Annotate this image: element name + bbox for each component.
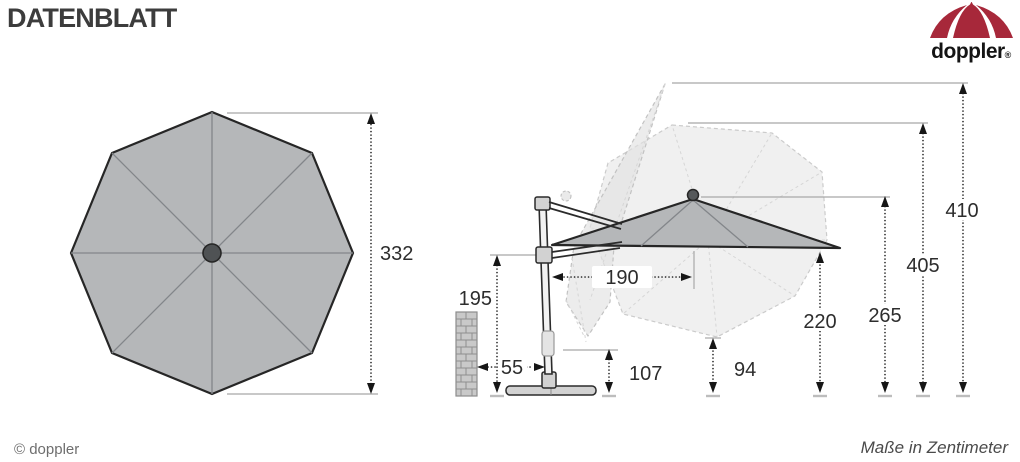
dim-hub-height: 265 xyxy=(865,196,905,396)
top-view-umbrella xyxy=(71,112,353,394)
dim-label-wall-clearance: 55 xyxy=(501,357,523,379)
dim-label-joint-height: 195 xyxy=(459,288,492,310)
dim-label-total-height: 410 xyxy=(945,200,978,222)
dim-tilt-clearance: 94 xyxy=(706,338,756,396)
dim-label-hub-height: 265 xyxy=(868,305,901,327)
units-note: Maße in Zentimeter xyxy=(861,438,1008,458)
dim-label-canopy-diameter: 332 xyxy=(380,243,413,265)
umbrella-diagram: 332 xyxy=(0,0,1020,462)
tilt-joint xyxy=(536,247,552,263)
dim-label-crank-height: 107 xyxy=(629,363,662,385)
dim-total-height: 410 xyxy=(942,83,982,396)
dim-wall-clearance: 55 xyxy=(477,356,545,379)
dim-crank-height: 107 xyxy=(602,349,662,396)
crank-sleeve xyxy=(542,331,554,356)
datasheet-page: { "header": { "title": "DATENBLATT" }, "… xyxy=(0,0,1020,462)
dim-label-canopy-offset: 190 xyxy=(605,267,638,289)
mast-cap xyxy=(535,197,550,210)
copyright-note: © doppler xyxy=(14,441,79,458)
dim-label-tilt-height: 405 xyxy=(906,255,939,277)
dim-tilt-height: 405 xyxy=(903,123,943,396)
dim-label-edge-clearance: 220 xyxy=(803,311,836,333)
canopy-hub-top-view xyxy=(203,244,221,262)
canopy-knob xyxy=(688,190,699,201)
brick-wall xyxy=(456,312,477,396)
dim-label-tilt-clearance: 94 xyxy=(734,359,756,381)
